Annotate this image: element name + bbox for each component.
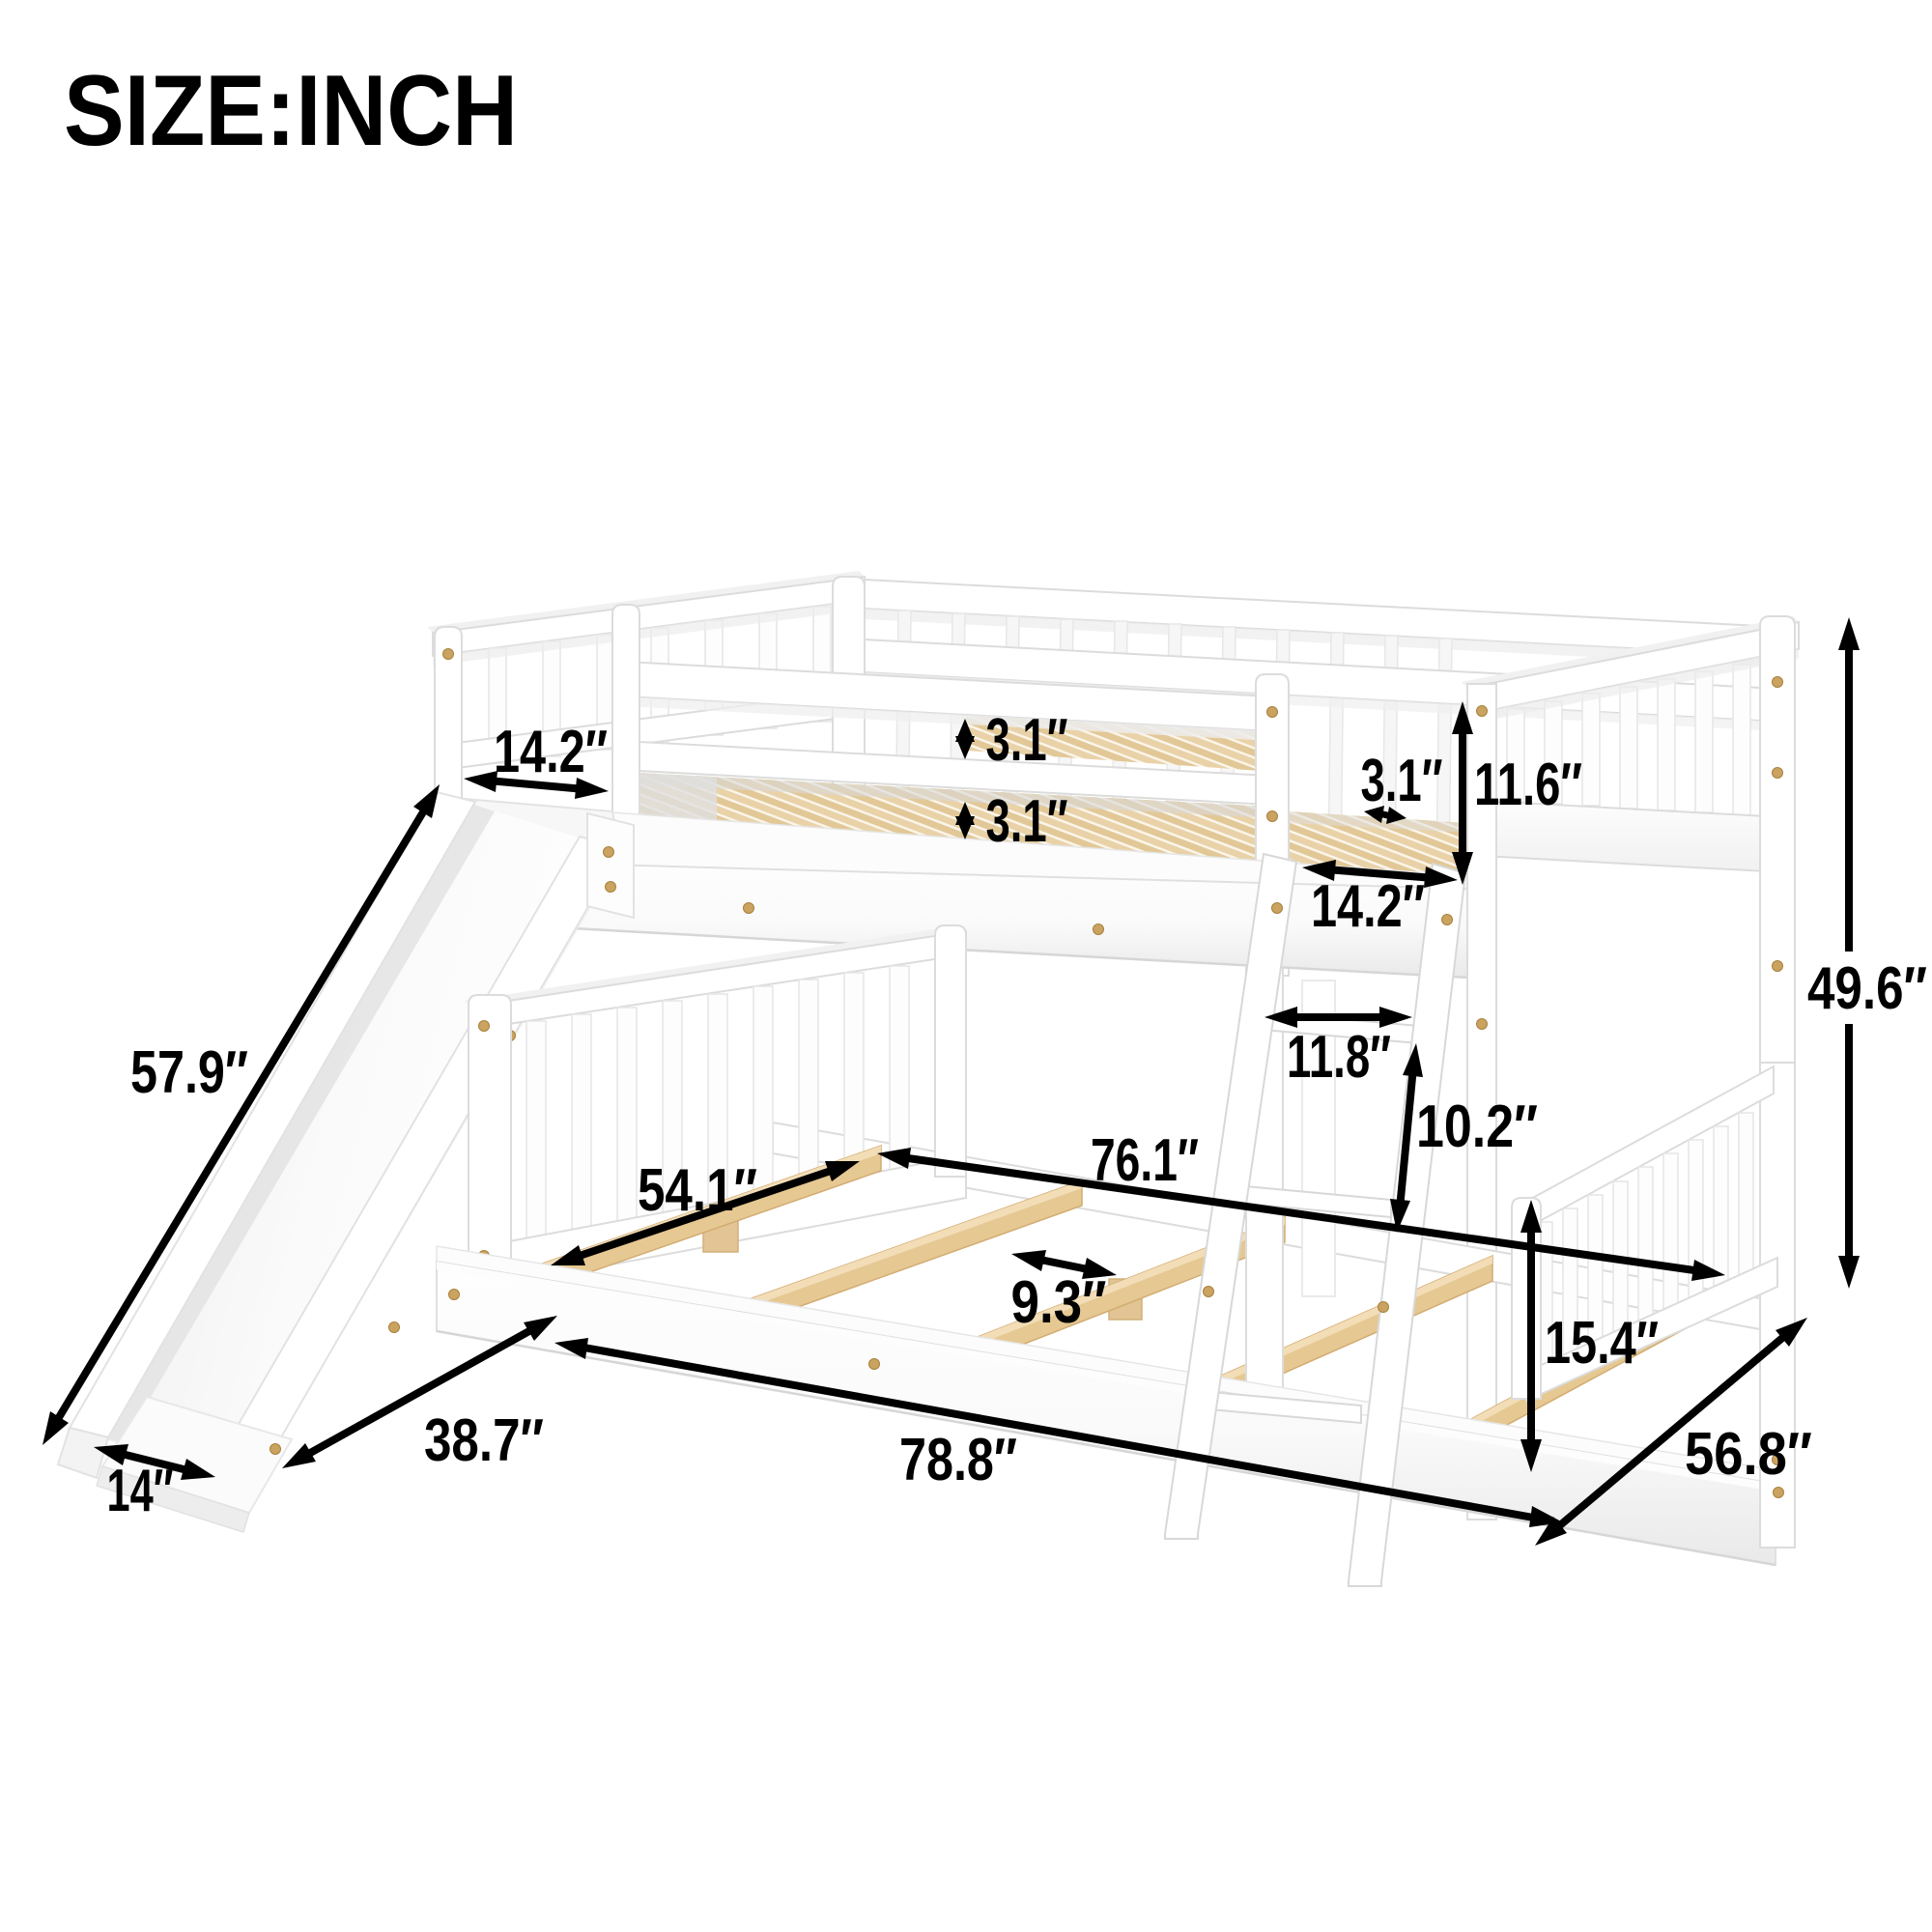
svg-text:SIZE:INCH: SIZE:INCH: [64, 55, 518, 167]
svg-text:76.1″: 76.1″: [1091, 1127, 1199, 1194]
svg-text:56.8″: 56.8″: [1685, 1421, 1812, 1488]
svg-text:38.7″: 38.7″: [424, 1407, 544, 1474]
svg-text:15.4″: 15.4″: [1545, 1310, 1659, 1377]
svg-text:11.8″: 11.8″: [1287, 1024, 1391, 1091]
svg-text:11.6″: 11.6″: [1474, 752, 1582, 818]
svg-text:57.9″: 57.9″: [130, 1039, 248, 1106]
svg-text:9.3″: 9.3″: [1011, 1269, 1107, 1336]
svg-text:49.6″: 49.6″: [1807, 955, 1927, 1022]
svg-text:14.2″: 14.2″: [1311, 873, 1425, 940]
svg-text:78.8″: 78.8″: [899, 1427, 1017, 1493]
svg-text:3.1″: 3.1″: [986, 788, 1068, 855]
svg-text:3.1″: 3.1″: [986, 707, 1068, 774]
svg-text:54.1″: 54.1″: [638, 1157, 757, 1224]
svg-text:14″: 14″: [107, 1458, 174, 1524]
svg-text:14.2″: 14.2″: [494, 719, 608, 785]
svg-text:3.1″: 3.1″: [1361, 748, 1443, 814]
svg-text:10.2″: 10.2″: [1416, 1094, 1538, 1160]
